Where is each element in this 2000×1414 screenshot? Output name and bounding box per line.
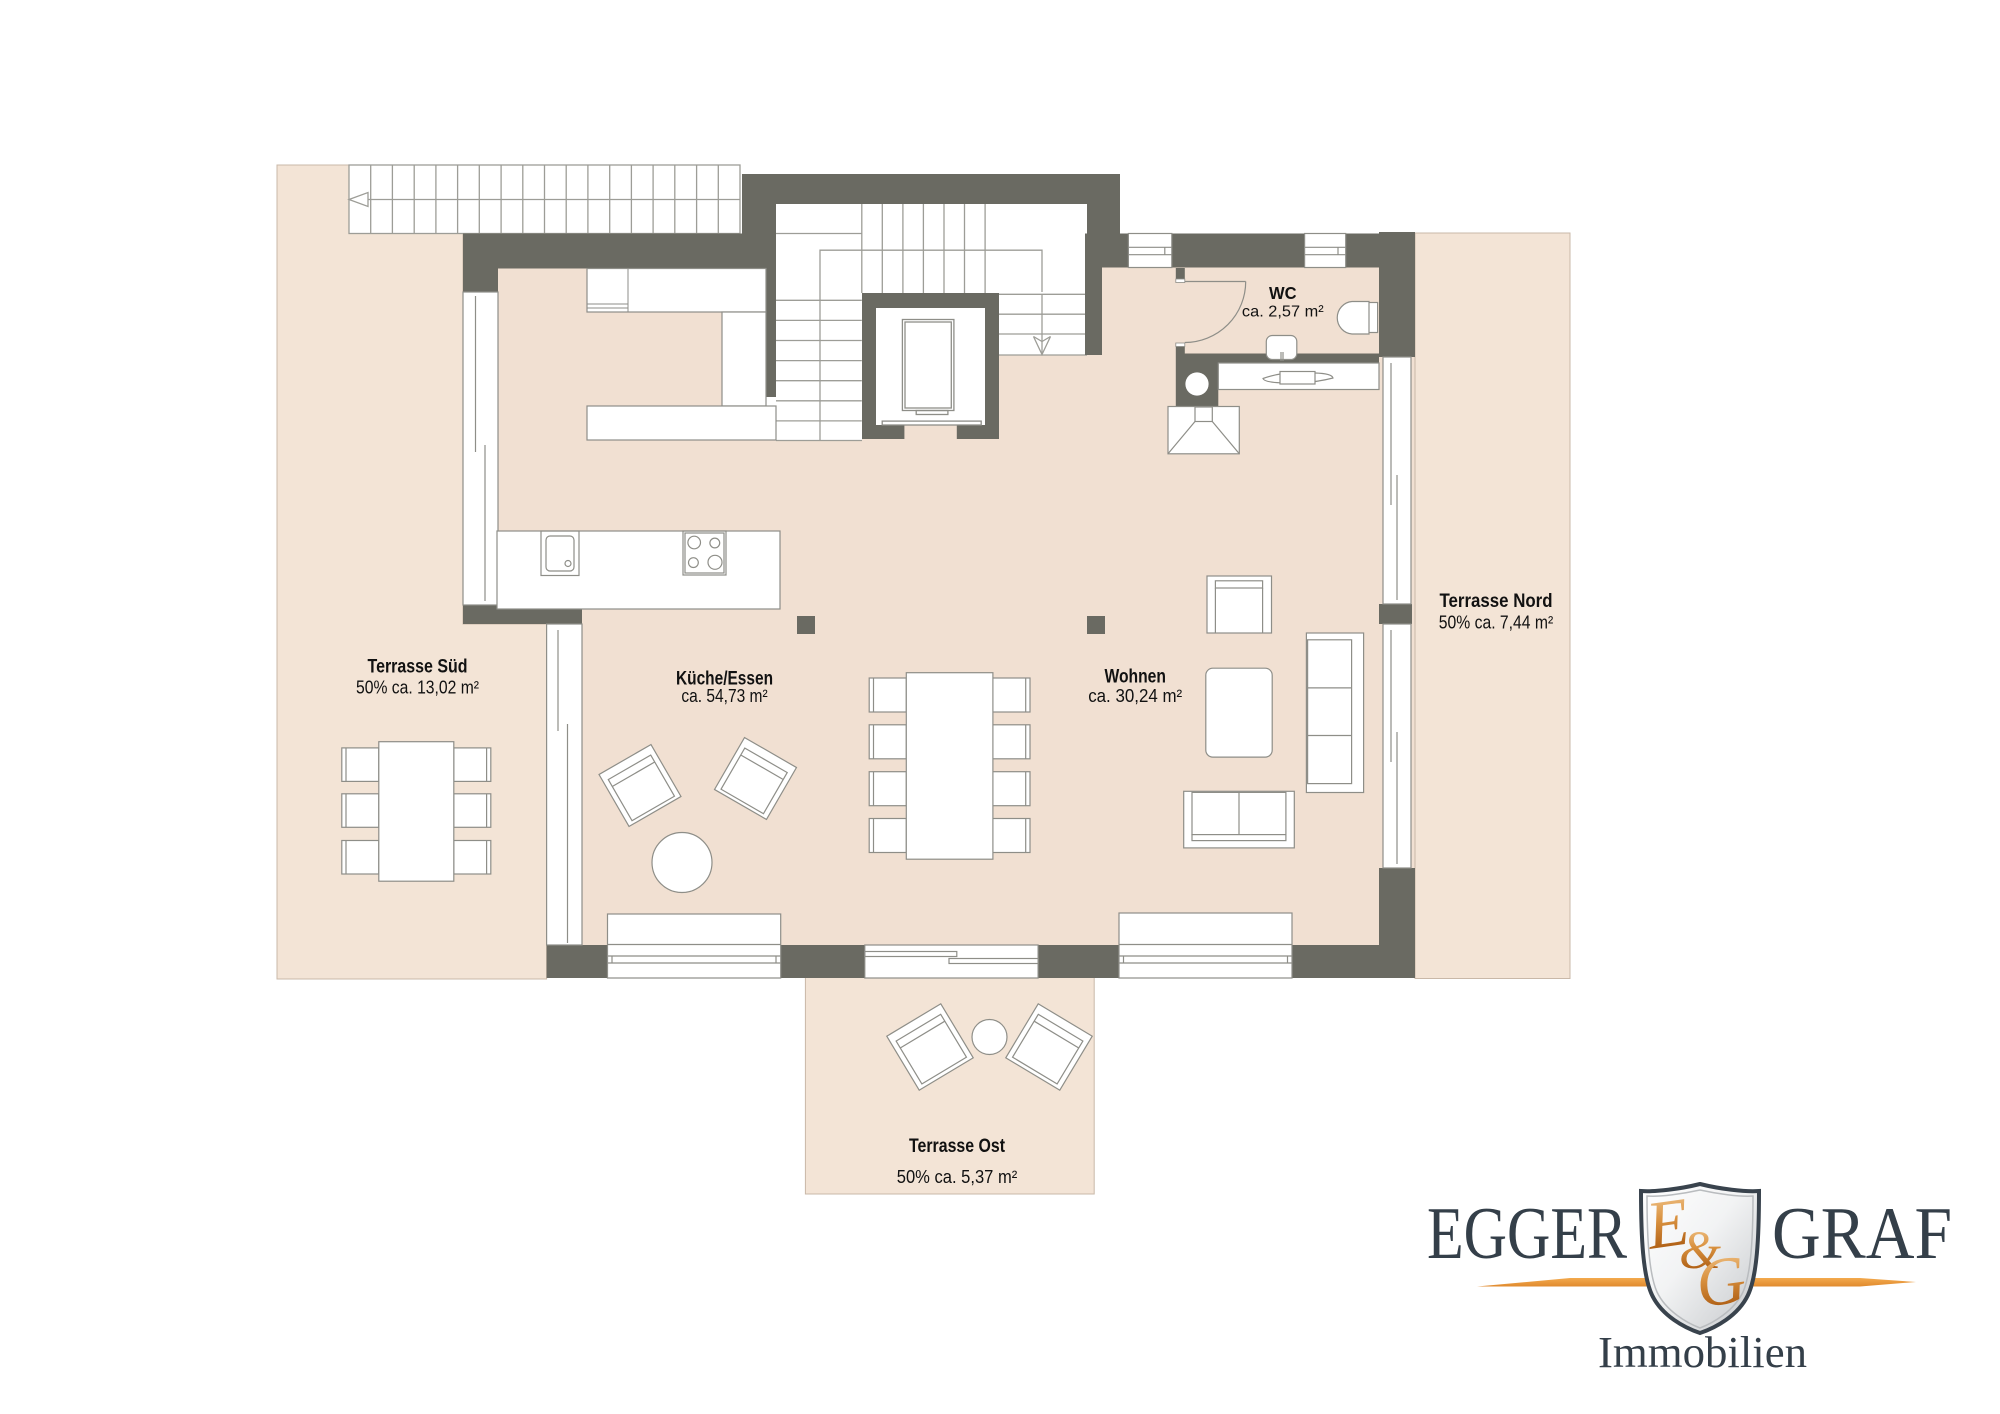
svg-text:50% ca. 7,44 m²: 50% ca. 7,44 m² xyxy=(1439,612,1553,632)
svg-text:Immobilien: Immobilien xyxy=(1598,1328,1807,1377)
svg-text:Terrasse Nord: Terrasse Nord xyxy=(1440,590,1553,612)
svg-text:WC: WC xyxy=(1269,283,1297,303)
svg-text:ca. 54,73 m²: ca. 54,73 m² xyxy=(681,686,767,706)
svg-text:GRAF: GRAF xyxy=(1772,1193,1952,1275)
svg-text:ca. 30,24 m²: ca. 30,24 m² xyxy=(1088,686,1182,706)
svg-text:EGGER: EGGER xyxy=(1427,1193,1628,1275)
svg-text:Terrasse Ost: Terrasse Ost xyxy=(909,1135,1005,1157)
svg-text:50% ca. 5,37 m²: 50% ca. 5,37 m² xyxy=(897,1167,1018,1187)
svg-text:Wohnen: Wohnen xyxy=(1104,666,1166,688)
svg-text:ca. 2,57 m²: ca. 2,57 m² xyxy=(1242,304,1324,321)
svg-text:Terrasse Süd: Terrasse Süd xyxy=(368,656,468,678)
svg-text:G: G xyxy=(1691,1240,1750,1322)
svg-text:50% ca. 13,02 m²: 50% ca. 13,02 m² xyxy=(356,678,479,698)
